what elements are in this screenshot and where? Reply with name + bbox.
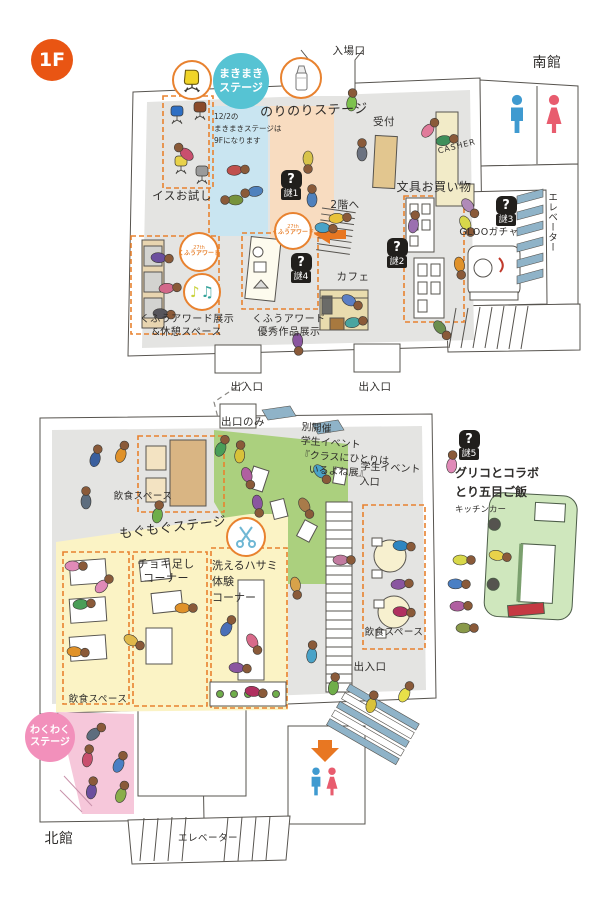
- kufu-badge-main-2: くふうアワード: [272, 230, 314, 237]
- glico-line2: とり五目ご飯: [455, 483, 539, 502]
- kufu-award-badge-center: 27th くふうアワード: [274, 212, 312, 250]
- scissors-line2: 体験: [212, 574, 278, 590]
- student-entrance-label: 学生イベント 入口: [359, 460, 420, 492]
- north-building-name: 北館: [45, 830, 74, 848]
- riddle-badge-3: ? 謎3: [493, 196, 519, 226]
- question-icon-4: ?: [291, 253, 312, 272]
- glue-stick-icon: [289, 63, 313, 93]
- reception-label: 受付: [373, 116, 395, 130]
- wakuwaku-line1: わくわく: [30, 725, 70, 738]
- riddle-badge-5: ? 謎5: [456, 430, 482, 460]
- choki-line1: チョキ足し: [137, 558, 195, 572]
- reception-desk: [373, 135, 398, 188]
- scissors-corner-label: 洗えるハサミ 体験 コーナー: [212, 558, 278, 606]
- south-building-name: 南館: [533, 54, 562, 72]
- kitchen-car-label: キッチンカー: [455, 504, 539, 517]
- wakuwaku-line2: ステージ: [30, 737, 70, 750]
- riddle-badge-1: ? 謎1: [278, 170, 304, 200]
- elevator-south-label: エレベーター: [545, 192, 557, 252]
- music-note-icon: ♪: [190, 283, 200, 301]
- music-note-icon-2: ♫: [201, 283, 214, 301]
- choki-line2: コーナー: [137, 572, 195, 586]
- entrance-label: 入場口: [333, 45, 366, 59]
- kufu-exhibit-label: くふうアワード展示 &休憩スペース: [140, 313, 235, 339]
- ladder-stairs: [326, 502, 352, 692]
- floor-map-1f: 1F 南館 北館 入場口 まきまき ステージ のりのりステージ 12/2の まき…: [0, 0, 600, 902]
- notice-line1: 12/2の: [214, 111, 281, 123]
- scissors-line3: コーナー: [212, 590, 278, 606]
- riddle-1-label: 謎1: [281, 188, 302, 200]
- to-2f-label: 2階へ: [330, 199, 359, 213]
- scissors-icon-badge: [226, 517, 266, 557]
- cafe-label: カフェ: [337, 271, 370, 285]
- makimaki-line2: ステージ: [219, 81, 263, 95]
- kufu-excellent-label: くふうアワード 優秀作品展示: [252, 313, 326, 339]
- south-exit-label-1: 出入口: [231, 381, 264, 395]
- glico-label: グリコとコラボ とり五目ご飯 キッチンカー: [455, 464, 539, 517]
- eat-space-label-sw: 飲食スペース: [69, 694, 128, 706]
- exit-only-label: 出口のみ: [221, 416, 265, 430]
- stationery-shopping-label: 文具お買い物: [396, 180, 471, 196]
- music-notes-icon-badge: ♪ ♫: [183, 273, 221, 311]
- kufu-award-badge-left: 27th くふうアワード: [179, 232, 219, 272]
- question-icon-5: ?: [459, 430, 480, 449]
- riddle-2-label: 謎2: [387, 256, 408, 268]
- riddle-4-label: 謎4: [291, 271, 312, 283]
- kufu-excellent-line1: くふうアワード: [252, 313, 326, 326]
- excellent-works-stand: [245, 237, 281, 302]
- floor-badge: 1F: [31, 39, 73, 81]
- glue-stick-icon-badge: [280, 57, 322, 99]
- notice-line2: まきまきステージは: [214, 123, 281, 135]
- notice-line3: 9Fになります: [214, 135, 281, 147]
- riddle-5-label: 謎5: [459, 448, 480, 460]
- gloo-gacha-label: GLOOガチャ: [459, 227, 518, 239]
- chair-trial-label: イスお試し: [152, 189, 212, 204]
- question-icon: ?: [281, 170, 302, 189]
- chair-icon: [179, 67, 205, 93]
- makimaki-notice: 12/2の まきまきステージは 9Fになります: [214, 111, 281, 147]
- kufu-exhibit-line2: &休憩スペース: [140, 326, 235, 339]
- floor-badge-text: 1F: [39, 49, 65, 71]
- riddle-badge-2: ? 謎2: [384, 238, 410, 268]
- eat-space-label-nw: 飲食スペース: [114, 491, 173, 503]
- kufu-exhibit-line1: くふうアワード展示: [140, 313, 235, 326]
- scissors-icon: [234, 525, 258, 549]
- makimaki-stage-badge: まきまき ステージ: [213, 53, 269, 109]
- scissors-line1: 洗えるハサミ: [212, 558, 278, 574]
- north-exit-label: 出入口: [354, 661, 387, 675]
- glico-line1: グリコとコラボ: [455, 464, 539, 483]
- question-icon-3: ?: [496, 196, 517, 215]
- makimaki-line1: まきまき: [219, 67, 263, 81]
- question-icon-2: ?: [387, 238, 408, 257]
- kufu-excellent-line2: 優秀作品展示: [252, 326, 326, 339]
- kufu-badge-main: くふうアワード: [178, 251, 220, 258]
- eat-space-label-e: 飲食スペース: [365, 627, 424, 639]
- south-exit-label-2: 出入口: [359, 381, 392, 395]
- riddle-3-label: 謎3: [496, 214, 517, 226]
- chair-icon-badge: [172, 60, 212, 100]
- choki-corner-label: チョキ足し コーナー: [137, 558, 195, 587]
- elevator-north-label: エレベーター: [178, 833, 238, 845]
- eat-space-sw-tables: [69, 559, 107, 661]
- wakuwaku-stage-badge: わくわく ステージ: [25, 712, 75, 762]
- riddle-badge-4: ? 謎4: [288, 253, 314, 283]
- gloo-gacha-machine: [468, 246, 520, 300]
